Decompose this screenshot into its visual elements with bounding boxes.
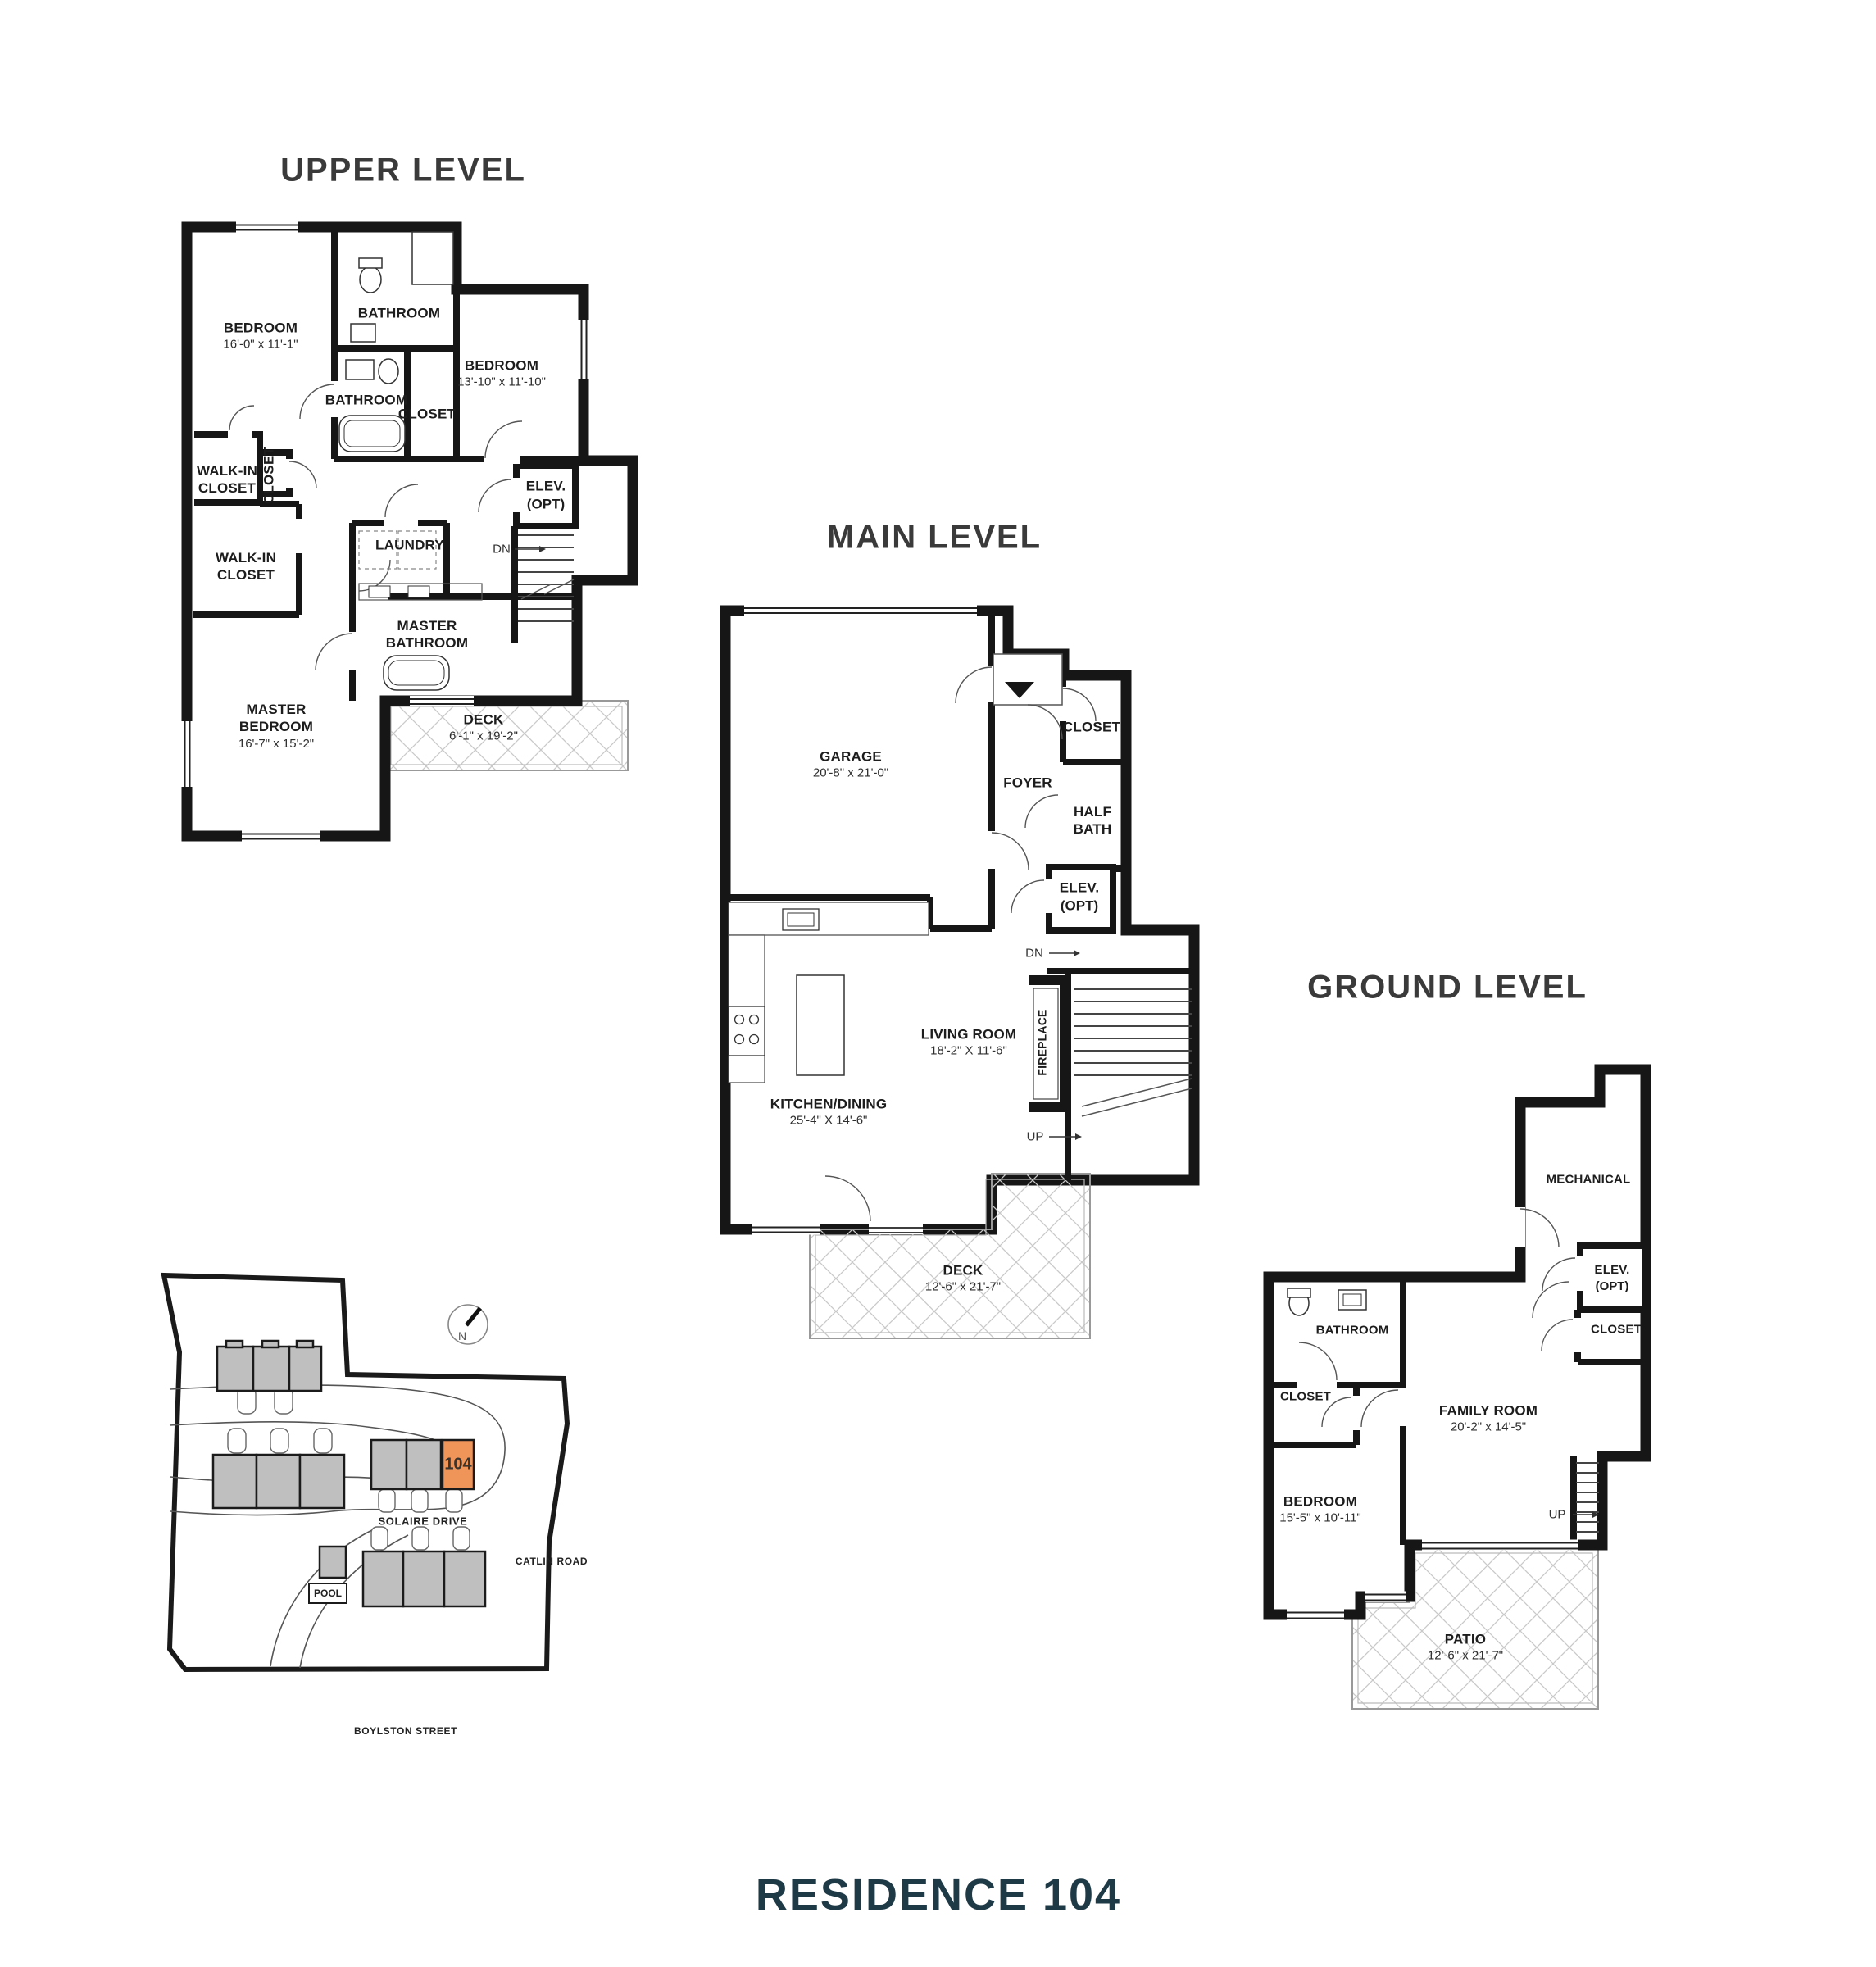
room-label-upper-walkin2: WALK-IN CLOSET: [210, 549, 282, 584]
room-dims: 20'-8" x 21'-0": [813, 766, 888, 782]
ground-level-title: GROUND LEVEL: [1307, 970, 1588, 1006]
room-label-ground-closet-left: CLOSET: [1280, 1390, 1331, 1406]
room-label-ground-family-room: FAMILY ROOM 20'-2" x 14'-5": [1439, 1402, 1538, 1436]
room-label-ground-elevator: ELEV. (OPT): [1595, 1263, 1630, 1295]
room-name: FIREPLACE: [1035, 1009, 1050, 1075]
room-dims: (OPT): [527, 496, 565, 513]
site-pool-label: POOL: [314, 1588, 342, 1599]
room-label-main-garage: GARAGE 20'-8" x 21'-0": [813, 748, 888, 782]
room-name: PATIO: [1445, 1631, 1486, 1648]
room-dims: 16'-7" x 15'-2": [238, 736, 314, 752]
room-label-main-foyer: FOYER: [1003, 774, 1052, 791]
room-name: MASTER BEDROOM: [229, 701, 323, 736]
main-entry-vestibule: [993, 654, 1062, 705]
compass-icon: [448, 1305, 488, 1344]
room-label-ground-mechanical: MECHANICAL: [1547, 1173, 1631, 1188]
room-label-upper-bathroom-mid: BATHROOM: [325, 391, 407, 408]
room-name: CLOSET: [260, 447, 277, 504]
room-name: CLOSET: [398, 405, 456, 422]
room-name: DECK: [943, 1262, 983, 1279]
room-label-main-closet: CLOSET: [1063, 718, 1120, 735]
upper-level-title: UPPER LEVEL: [280, 152, 526, 189]
room-name: FOYER: [1003, 774, 1052, 791]
stairs-dn-label-upper: DN: [493, 543, 511, 556]
room-label-ground-bedroom: BEDROOM 15'-5" x 10'-11": [1279, 1493, 1361, 1527]
ground-exterior-walls: [1269, 1070, 1646, 1615]
room-name: CLOSET: [1063, 718, 1120, 735]
room-dims: 20'-2" x 14'-5": [1451, 1420, 1526, 1436]
room-dims: 13'-10" x 11'-10": [457, 375, 546, 391]
site-plan: [156, 1266, 582, 1758]
room-name: KITCHEN/DINING: [770, 1096, 888, 1113]
room-dims: 6'-1" x 19'-2": [449, 729, 518, 745]
room-label-upper-hall-closet: CLOSET: [260, 447, 277, 504]
street-label-solaire-drive: SOLAIRE DRIVE: [379, 1515, 468, 1528]
room-name: ELEV.: [1060, 879, 1100, 896]
room-name: ELEV.: [526, 477, 566, 494]
site-unit-104-label: 104: [444, 1456, 471, 1474]
room-name: HALF BATH: [1066, 803, 1119, 838]
floorplan-sheet: UPPER LEVEL MAIN LEVEL GROUND LEVEL RESI…: [0, 0, 1876, 1967]
room-name: BATHROOM: [358, 304, 440, 321]
room-name: CLOSET: [1591, 1323, 1642, 1338]
room-label-upper-walkin1: WALK-IN CLOSET: [191, 462, 263, 497]
room-label-upper-master-bedroom: MASTER BEDROOM 16'-7" x 15'-2": [229, 701, 323, 752]
main-level-title: MAIN LEVEL: [827, 520, 1042, 556]
stairs-up-label-main: UP: [1027, 1130, 1044, 1144]
street-label-catlin-road: CATLIN ROAD: [516, 1556, 588, 1567]
main-level-floorplan: [705, 590, 1213, 1377]
room-label-main-deck: DECK 12'-6" x 21'-7": [925, 1262, 1001, 1296]
room-dims: (OPT): [1061, 897, 1098, 915]
room-name: BEDROOM: [465, 357, 538, 375]
room-label-upper-bedroom2-closet: CLOSET: [398, 405, 456, 422]
room-dims: 16'-0" x 11'-1": [223, 338, 298, 353]
room-name: WALK-IN CLOSET: [191, 462, 263, 497]
room-name: ELEV.: [1595, 1263, 1630, 1279]
room-label-main-elevator: ELEV. (OPT): [1060, 879, 1100, 915]
room-label-main-kitchen-dining: KITCHEN/DINING 25'-4" X 14'-6": [770, 1096, 888, 1129]
room-label-ground-bathroom: BATHROOM: [1316, 1324, 1389, 1339]
room-dims: 25'-4" X 14'-6": [790, 1114, 868, 1129]
room-dims: 18'-2" X 11'-6": [930, 1044, 1007, 1060]
room-label-upper-bedroom: BEDROOM 16'-0" x 11'-1": [223, 320, 298, 353]
page-title: RESIDENCE 104: [756, 1869, 1121, 1920]
room-label-main-fireplace: FIREPLACE: [1035, 1009, 1050, 1075]
room-name: BEDROOM: [224, 320, 298, 337]
room-name: LIVING ROOM: [921, 1026, 1016, 1043]
room-dims: (OPT): [1596, 1279, 1629, 1295]
room-label-upper-elevator: ELEV. (OPT): [526, 477, 566, 513]
room-label-main-half-bath: HALF BATH: [1066, 803, 1119, 838]
room-name: GARAGE: [820, 748, 882, 765]
stairs-dn-label-main: DN: [1025, 947, 1043, 961]
room-label-upper-laundry: LAUNDRY: [375, 536, 444, 553]
room-dims: 15'-5" x 10'-11": [1279, 1511, 1361, 1527]
stairs-up-label-ground: UP: [1549, 1508, 1566, 1522]
room-name: LAUNDRY: [375, 536, 444, 553]
room-name: FAMILY ROOM: [1439, 1402, 1538, 1420]
room-label-ground-closet-right: CLOSET: [1591, 1323, 1642, 1338]
room-name: BATHROOM: [1316, 1324, 1389, 1339]
room-label-upper-master-bathroom: MASTER BATHROOM: [384, 617, 470, 652]
room-label-main-living-room: LIVING ROOM 18'-2" X 11'-6": [921, 1026, 1016, 1060]
room-dims: 12'-6" x 21'-7": [925, 1280, 1001, 1296]
room-name: BEDROOM: [1283, 1493, 1357, 1510]
room-name: MECHANICAL: [1547, 1173, 1631, 1188]
room-dims: 12'-6" x 21'-7": [1428, 1649, 1503, 1665]
compass-north-label: N: [458, 1329, 466, 1342]
room-name: MASTER BATHROOM: [384, 617, 470, 652]
room-label-upper-bathroom-top: BATHROOM: [358, 304, 440, 321]
room-label-ground-patio: PATIO 12'-6" x 21'-7": [1428, 1631, 1503, 1665]
street-label-boylston-street: BOYLSTON STREET: [354, 1725, 457, 1737]
room-label-upper-deck: DECK 6'-1" x 19'-2": [449, 711, 518, 745]
room-name: BATHROOM: [325, 391, 407, 408]
room-name: CLOSET: [1280, 1390, 1331, 1406]
room-name: DECK: [464, 711, 504, 729]
room-label-upper-bedroom2: BEDROOM 13'-10" x 11'-10": [457, 357, 546, 391]
room-name: WALK-IN CLOSET: [210, 549, 282, 584]
